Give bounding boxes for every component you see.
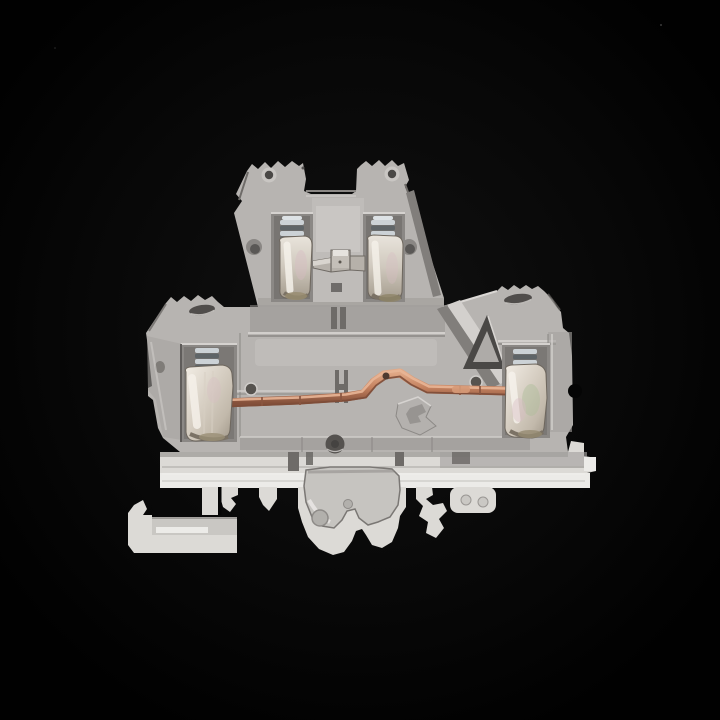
din-tab-right <box>450 487 496 513</box>
bottom-rib <box>240 437 530 450</box>
mold-speck <box>302 167 305 170</box>
din-hook-slot-highlight <box>156 527 208 533</box>
recess-hole <box>245 383 257 395</box>
center-slot <box>331 307 337 329</box>
right-edge-notch <box>568 384 582 398</box>
center-panel-smooth <box>316 206 360 252</box>
center-slot <box>340 307 346 329</box>
upper-left-clamp <box>280 236 312 300</box>
face-recess-core <box>250 244 260 254</box>
busbar-dark-spot <box>383 373 390 380</box>
window-top-shadow <box>308 471 394 472</box>
smooth-panel <box>255 339 437 366</box>
foot-dimple <box>312 510 328 526</box>
lower-level-housing <box>146 285 582 454</box>
foot-gap <box>218 487 222 515</box>
din-left-stem <box>202 487 218 515</box>
upper-base-recess <box>250 307 445 333</box>
solder-patch <box>452 386 470 393</box>
rail-notch <box>452 452 470 464</box>
terminal-block-photo <box>0 0 720 720</box>
upper-left-ear-hole <box>262 168 277 183</box>
product-photo <box>0 0 720 720</box>
rail-end-tab <box>584 457 596 471</box>
foot-dimple <box>344 500 353 509</box>
lower-left-clamp <box>186 365 234 441</box>
upper-right-clamp <box>368 235 403 302</box>
noise-speck <box>54 47 56 49</box>
upper-right-ear-hole <box>385 167 400 182</box>
noise-speck <box>660 24 662 26</box>
center-square-hole <box>331 283 342 292</box>
rail-slot <box>288 452 299 471</box>
rib-hole-core <box>331 440 339 448</box>
rail-slot <box>395 451 404 466</box>
lower-right-clamp <box>505 364 547 438</box>
rail-slot <box>306 452 313 465</box>
tab-dimple <box>461 495 471 505</box>
face-recess-core <box>405 244 415 254</box>
tab-dimple <box>478 497 488 507</box>
